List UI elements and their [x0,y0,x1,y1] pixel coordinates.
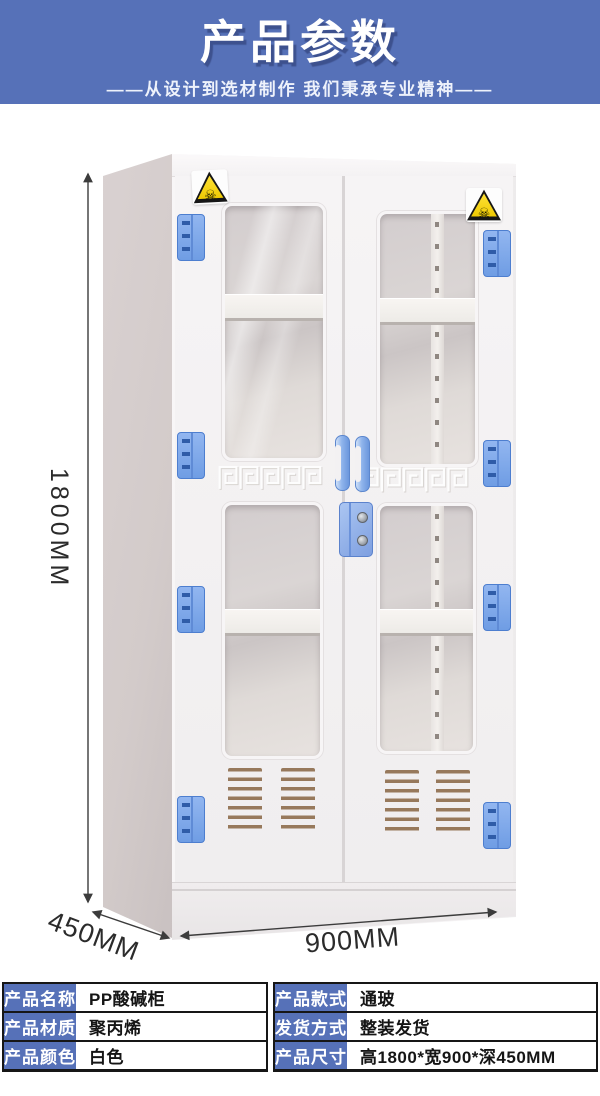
vent-louvers [436,770,470,834]
glass-window-lower-right [377,503,476,754]
table-row: 产品名称 PP酸碱柜 [4,984,266,1013]
table-row: 产品尺寸 高1800*宽900*深450MM [275,1042,596,1069]
meander-pattern-left [218,463,322,493]
table-row: 发货方式 整装发货 [275,1013,596,1042]
meander-pattern-right [358,465,468,495]
cabinet-front: ☠ ☠ [172,154,516,940]
glass-window-upper-left [222,203,326,461]
spec-label: 产品名称 [4,984,76,1011]
depth-dimension-label: 450MM [44,905,144,967]
spec-value: 高1800*宽900*深450MM [347,1042,596,1069]
table-row: 产品颜色 白色 [4,1042,266,1069]
spec-label: 产品尺寸 [275,1042,347,1069]
door-hinge [177,586,205,633]
shelf [380,609,473,636]
spec-label: 产品材质 [4,1013,76,1040]
shelf-standard [431,214,444,464]
door-hinge [483,584,511,631]
door-handle-right [355,436,370,492]
spec-table-right: 产品款式 通玻 发货方式 整装发货 产品尺寸 高1800*宽900*深450MM [273,982,598,1072]
spec-value: 白色 [76,1042,266,1069]
toxic-warning-icon: ☠ [466,188,502,222]
spec-value: PP酸碱柜 [76,984,266,1011]
cabinet-side-panel [103,154,172,938]
toxic-warning-icon: ☠ [191,169,229,205]
door-hinge [483,802,511,849]
glass-window-lower-left [222,502,323,759]
door-gap-line [342,176,345,882]
dimension-lines [0,0,600,1096]
door-hinge [483,440,511,487]
screw [357,512,368,523]
product-parameters-page: 产品参数 ——从设计到选材制作 我们秉承专业精神—— [0,0,600,1096]
page-title: 产品参数 [200,6,400,72]
right-door [345,176,513,882]
spec-table-left: 产品名称 PP酸碱柜 产品材质 聚丙烯 产品颜色 白色 [2,982,268,1072]
spec-value: 聚丙烯 [76,1013,266,1040]
product-figure: ☠ ☠ 1800MM 900MM 450MM [0,0,600,1096]
door-handle-left [335,435,350,491]
door-hinge [177,214,205,261]
table-row: 产品材质 聚丙烯 [4,1013,266,1042]
shelf [380,298,475,325]
door-hinge [177,796,205,843]
spec-label: 产品款式 [275,984,347,1011]
dimension-annotations: 1800MM 900MM 450MM [0,0,600,1096]
spec-label: 发货方式 [275,1013,347,1040]
banner-subtitle: ——从设计到选材制作 我们秉承专业精神—— [107,75,494,100]
glass-window-upper-right [377,211,478,467]
table-row: 产品款式 通玻 [275,984,596,1013]
door-hinge [177,432,205,479]
banner: 产品参数 ——从设计到选材制作 我们秉承专业精神—— [0,0,600,104]
vent-louvers [281,768,315,832]
lock-plate [339,502,373,557]
glass-reflection [225,206,323,458]
screw [357,535,368,546]
shelf [225,294,323,321]
left-door [175,176,343,882]
height-dimension-label: 1800MM [44,468,73,589]
cabinet-top-rail [172,154,516,177]
spec-value: 整装发货 [347,1013,596,1040]
cabinet-base [172,882,516,941]
width-dimension-label: 900MM [304,921,401,959]
vent-louvers [385,770,419,834]
spec-value: 通玻 [347,984,596,1011]
shelf [225,609,320,636]
shelf-standard [431,506,444,751]
spec-label: 产品颜色 [4,1042,76,1069]
vent-louvers [228,768,262,832]
door-hinge [483,230,511,277]
